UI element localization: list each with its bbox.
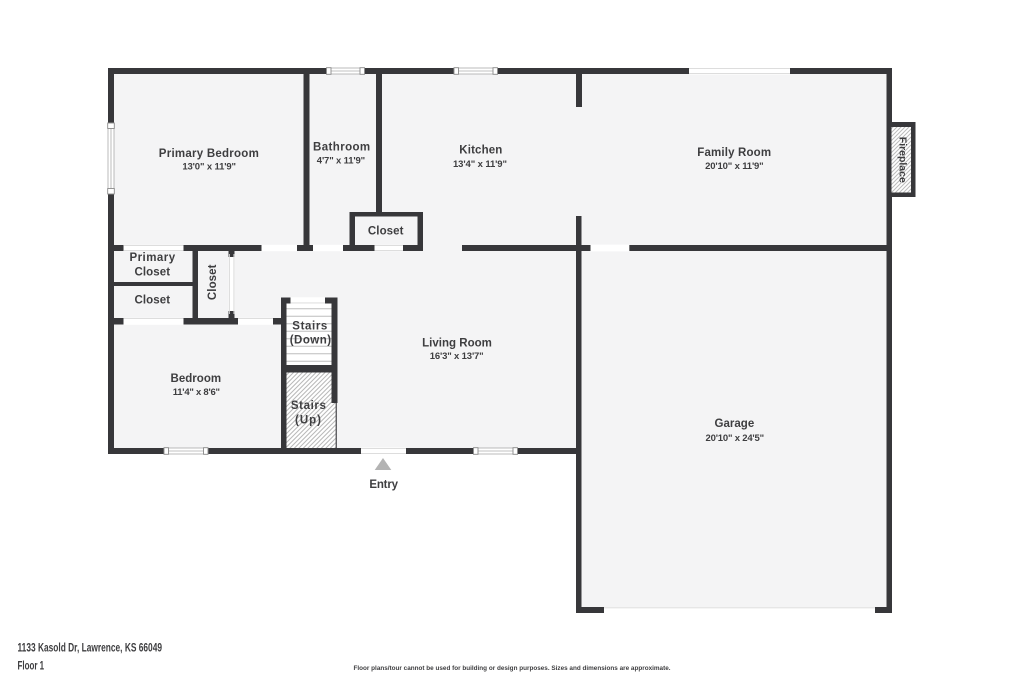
svg-text:Family Room: Family Room	[697, 147, 771, 159]
svg-text:4'7" x 11'9": 4'7" x 11'9"	[317, 156, 365, 167]
svg-text:Bedroom: Bedroom	[171, 373, 222, 385]
svg-text:11'4" x 8'6": 11'4" x 8'6"	[173, 387, 220, 398]
svg-text:Entry: Entry	[369, 479, 398, 491]
svg-text:1133 Kasold Dr, Lawrence, KS 6: 1133 Kasold Dr, Lawrence, KS 66049	[18, 642, 163, 654]
svg-text:13'0" x 11'9": 13'0" x 11'9"	[182, 161, 236, 172]
svg-text:Kitchen: Kitchen	[459, 145, 502, 157]
svg-text:Stairs: Stairs	[292, 321, 327, 333]
svg-text:Closet: Closet	[135, 266, 171, 278]
svg-text:Closet: Closet	[207, 264, 219, 300]
svg-text:Primary Bedroom: Primary Bedroom	[159, 148, 259, 160]
svg-text:Primary: Primary	[130, 252, 176, 264]
svg-text:Bathroom: Bathroom	[313, 142, 370, 154]
svg-text:Floor 1: Floor 1	[18, 661, 45, 673]
svg-text:Stairs: Stairs	[291, 400, 326, 412]
svg-text:Fireplace: Fireplace	[896, 137, 907, 183]
svg-text:Closet: Closet	[368, 225, 404, 237]
svg-text:20'10" x 24'5": 20'10" x 24'5"	[706, 433, 765, 444]
svg-text:(Up): (Up)	[295, 414, 321, 426]
svg-text:13'4" x 11'9": 13'4" x 11'9"	[453, 159, 507, 170]
svg-text:(Down): (Down)	[290, 335, 331, 347]
svg-text:Garage: Garage	[715, 418, 755, 430]
svg-text:Closet: Closet	[135, 294, 171, 306]
svg-text:Floor plans/tour cannot be use: Floor plans/tour cannot be used for buil…	[354, 665, 671, 672]
svg-text:Living Room: Living Room	[422, 337, 492, 349]
svg-text:16'3" x 13'7": 16'3" x 13'7"	[430, 351, 484, 362]
svg-text:20'10" x 11'9": 20'10" x 11'9"	[705, 161, 764, 172]
